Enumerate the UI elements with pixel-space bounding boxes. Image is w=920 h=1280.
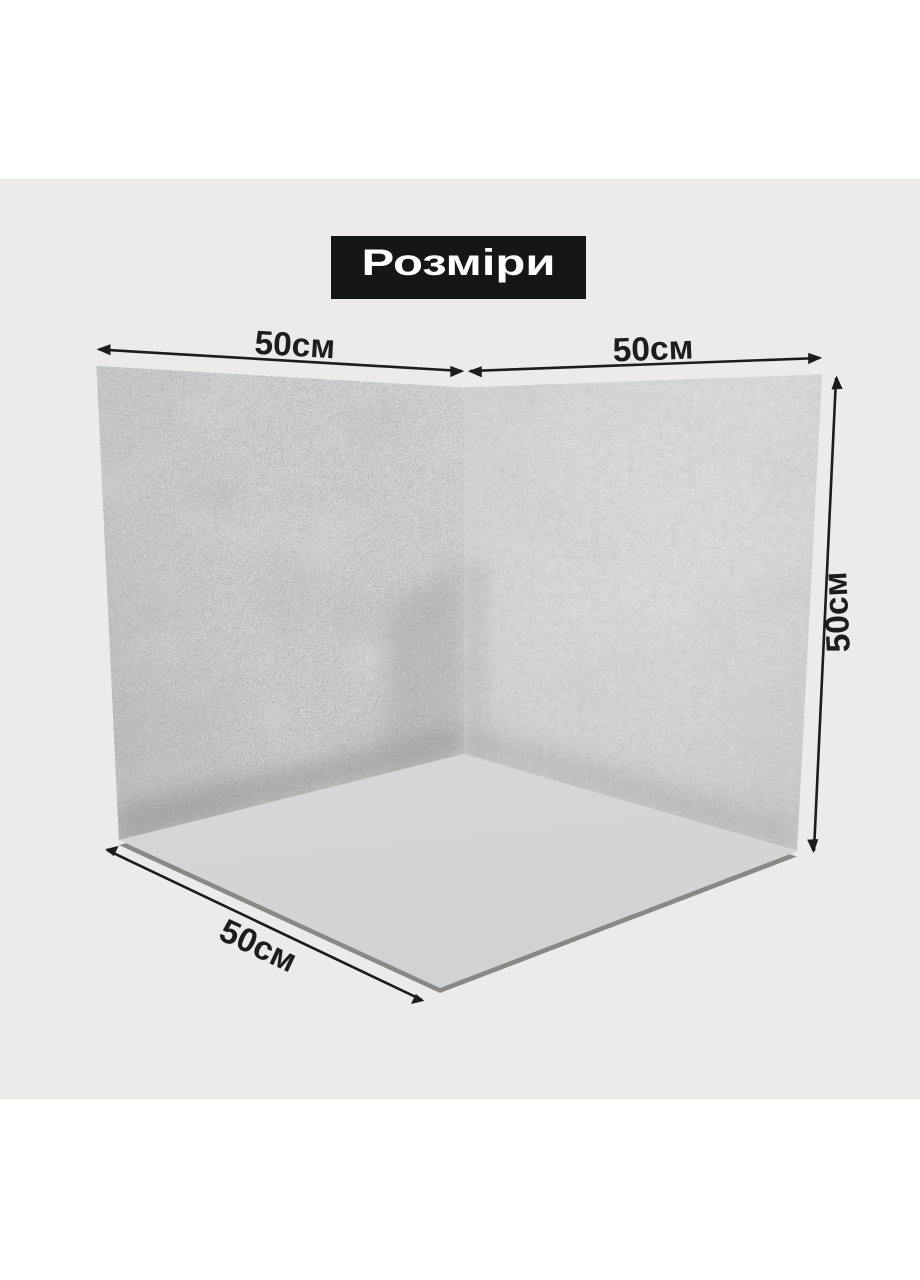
svg-text:Розміри: Розміри	[362, 242, 556, 283]
svg-text:50см: 50см	[253, 325, 336, 367]
svg-text:50см: 50см	[817, 571, 858, 653]
svg-text:50см: 50см	[612, 329, 694, 369]
